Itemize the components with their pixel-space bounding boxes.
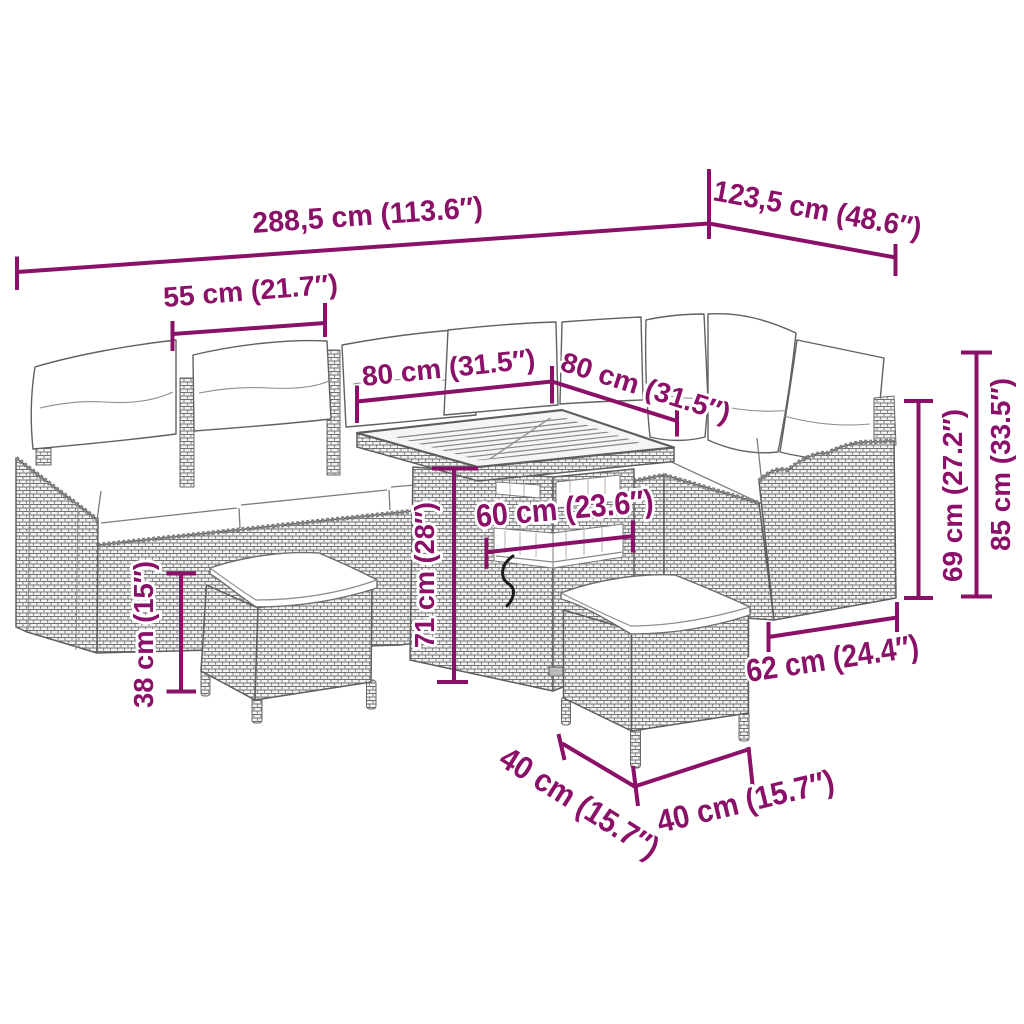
svg-text:69 cm (27.2″): 69 cm (27.2″) bbox=[937, 409, 968, 582]
svg-text:85 cm (33.5″): 85 cm (33.5″) bbox=[985, 378, 1016, 551]
svg-text:38 cm (15″): 38 cm (15″) bbox=[128, 561, 159, 708]
svg-text:71 cm (28″): 71 cm (28″) bbox=[409, 502, 440, 648]
